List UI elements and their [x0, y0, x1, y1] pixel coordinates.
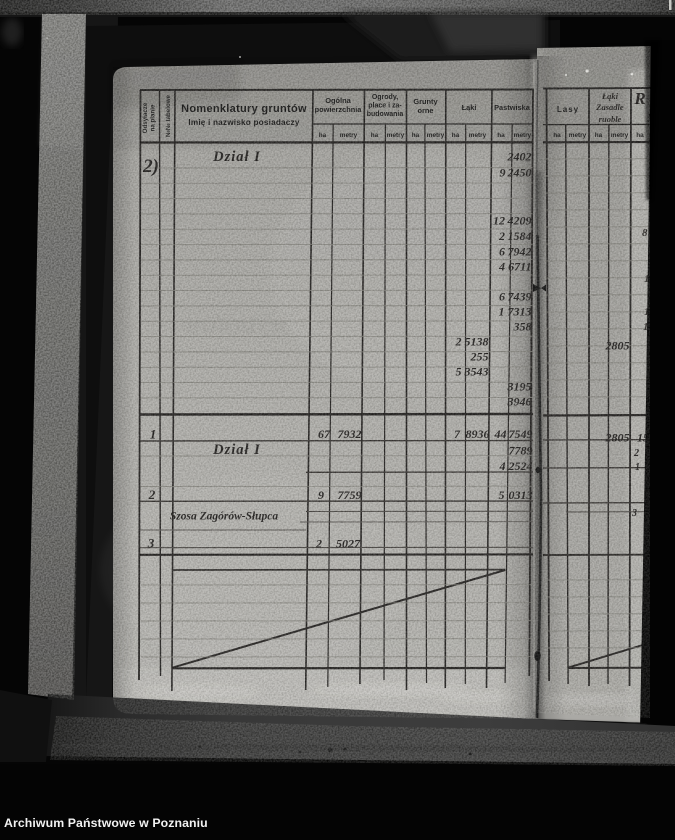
svg-text:Archiwum Państwowe w Poznaniu: Archiwum Państwowe w Poznaniu — [4, 816, 208, 830]
